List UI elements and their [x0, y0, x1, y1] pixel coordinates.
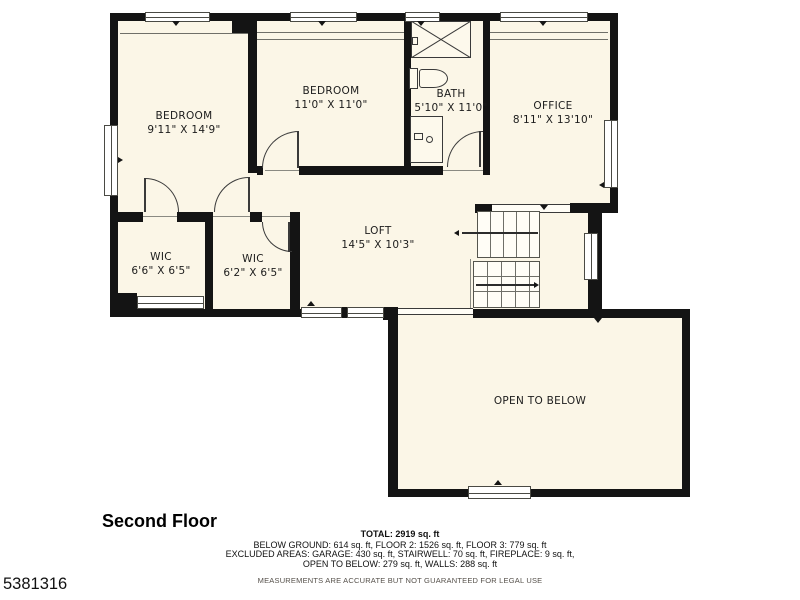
window-bay [137, 296, 204, 309]
toilet-tank [409, 68, 418, 89]
wall-wic-top [110, 212, 143, 222]
window-marker [540, 205, 548, 210]
window-marker [318, 21, 326, 26]
ceiling-line [257, 39, 404, 40]
stair-tread [529, 212, 530, 257]
room-label-bedroom-2: BEDROOM 11'0" X 11'0" [261, 84, 401, 113]
window-marker [307, 301, 315, 306]
room-name: LOFT [308, 224, 448, 238]
shower [411, 21, 471, 58]
ceiling-line [490, 39, 608, 40]
stairs-upper-flight [477, 211, 540, 258]
window [468, 486, 531, 499]
door-leaf [288, 222, 290, 252]
stair-tread [516, 212, 517, 257]
shower-head [412, 37, 418, 45]
room-label-bedroom-1: BEDROOM 9'11" X 14'9" [114, 109, 254, 138]
ceiling-line [490, 32, 608, 33]
room-label-loft: LOFT 14'5" X 10'3" [308, 224, 448, 253]
wall-wic-top [250, 212, 262, 222]
wall-bath-bottom [404, 166, 443, 175]
room-name: OFFICE [483, 99, 623, 113]
wall-otb-bottom [388, 489, 690, 497]
vanity-soap-dish [414, 133, 423, 140]
room-name: WIC [208, 252, 298, 266]
wall-notch-bedroom1 [232, 21, 252, 33]
room-label-office: OFFICE 8'11" X 13'10" [483, 99, 623, 128]
ceiling-line [120, 33, 248, 34]
room-label-wic-1: WIC 6'6" X 6'5" [116, 250, 206, 279]
room-name: BEDROOM [261, 84, 401, 98]
stair-direction-arrow [462, 232, 538, 234]
door-threshold [143, 216, 177, 217]
window-marker [539, 21, 547, 26]
stair-tread [503, 212, 504, 257]
door-leaf [297, 131, 299, 168]
window-marker [599, 182, 604, 188]
room-dims: 14'5" X 10'3" [308, 238, 448, 252]
window-marker [417, 21, 425, 26]
summary-line-3: OPEN TO BELOW: 279 sq. ft, WALLS: 288 sq… [150, 560, 650, 570]
vanity-faucet [426, 136, 433, 143]
railing-open-to-below [398, 308, 473, 315]
room-dims: 11'0" X 11'0" [261, 98, 401, 112]
window [604, 120, 618, 188]
room-dims: 6'6" X 6'5" [116, 264, 206, 278]
stair-arrow-head [534, 282, 539, 288]
ceiling-line [257, 32, 404, 33]
wall-bedroom2-bottom [299, 166, 404, 175]
room-dims: 9'11" X 14'9" [114, 123, 254, 137]
room-name: OPEN TO BELOW [440, 394, 640, 408]
door-leaf [144, 178, 146, 212]
wall-otb-right [682, 310, 690, 497]
stair-tread [490, 212, 491, 257]
window [301, 307, 342, 318]
room-label-wic-2: WIC 6'2" X 6'5" [208, 252, 298, 281]
wall-bottom-left [110, 309, 300, 317]
door-threshold [265, 170, 299, 171]
wall-otb-left [388, 308, 398, 497]
room-label-open-to-below: OPEN TO BELOW [440, 394, 640, 408]
toilet-bowl [419, 69, 448, 88]
room-name: BEDROOM [114, 109, 254, 123]
door-leaf [248, 177, 250, 212]
stair-direction-arrow [476, 284, 534, 286]
floor-title: Second Floor [102, 511, 217, 532]
stair-tread [474, 291, 539, 292]
door-threshold [262, 216, 290, 217]
stair-tread [474, 276, 539, 277]
window-marker [118, 157, 123, 163]
listing-id: 5381316 [3, 575, 67, 594]
window [584, 233, 598, 280]
door-leaf [479, 131, 481, 167]
window-marker [594, 318, 602, 323]
window-marker [494, 480, 502, 485]
room-dims: 6'2" X 6'5" [208, 266, 298, 280]
floor-plan-canvas: BEDROOM 9'11" X 14'9" BEDROOM 11'0" X 11… [0, 0, 800, 600]
wall-wic-top [177, 212, 213, 222]
wall-bedroom-divider [248, 21, 257, 173]
room-name: WIC [116, 250, 206, 264]
stair-arrow-head [454, 230, 459, 236]
summary-total: TOTAL: 2919 sq. ft [150, 530, 650, 540]
area-summary: TOTAL: 2919 sq. ft BELOW GROUND: 614 sq.… [150, 530, 650, 585]
door-threshold [213, 216, 250, 217]
door-threshold [443, 170, 483, 171]
wall-otb-top [473, 309, 690, 318]
window [347, 307, 384, 318]
stair-open-edge [470, 259, 471, 308]
summary-disclaimer: MEASUREMENTS ARE ACCURATE BUT NOT GUARAN… [150, 577, 650, 585]
window-marker [172, 21, 180, 26]
room-dims: 8'11" X 13'10" [483, 113, 623, 127]
